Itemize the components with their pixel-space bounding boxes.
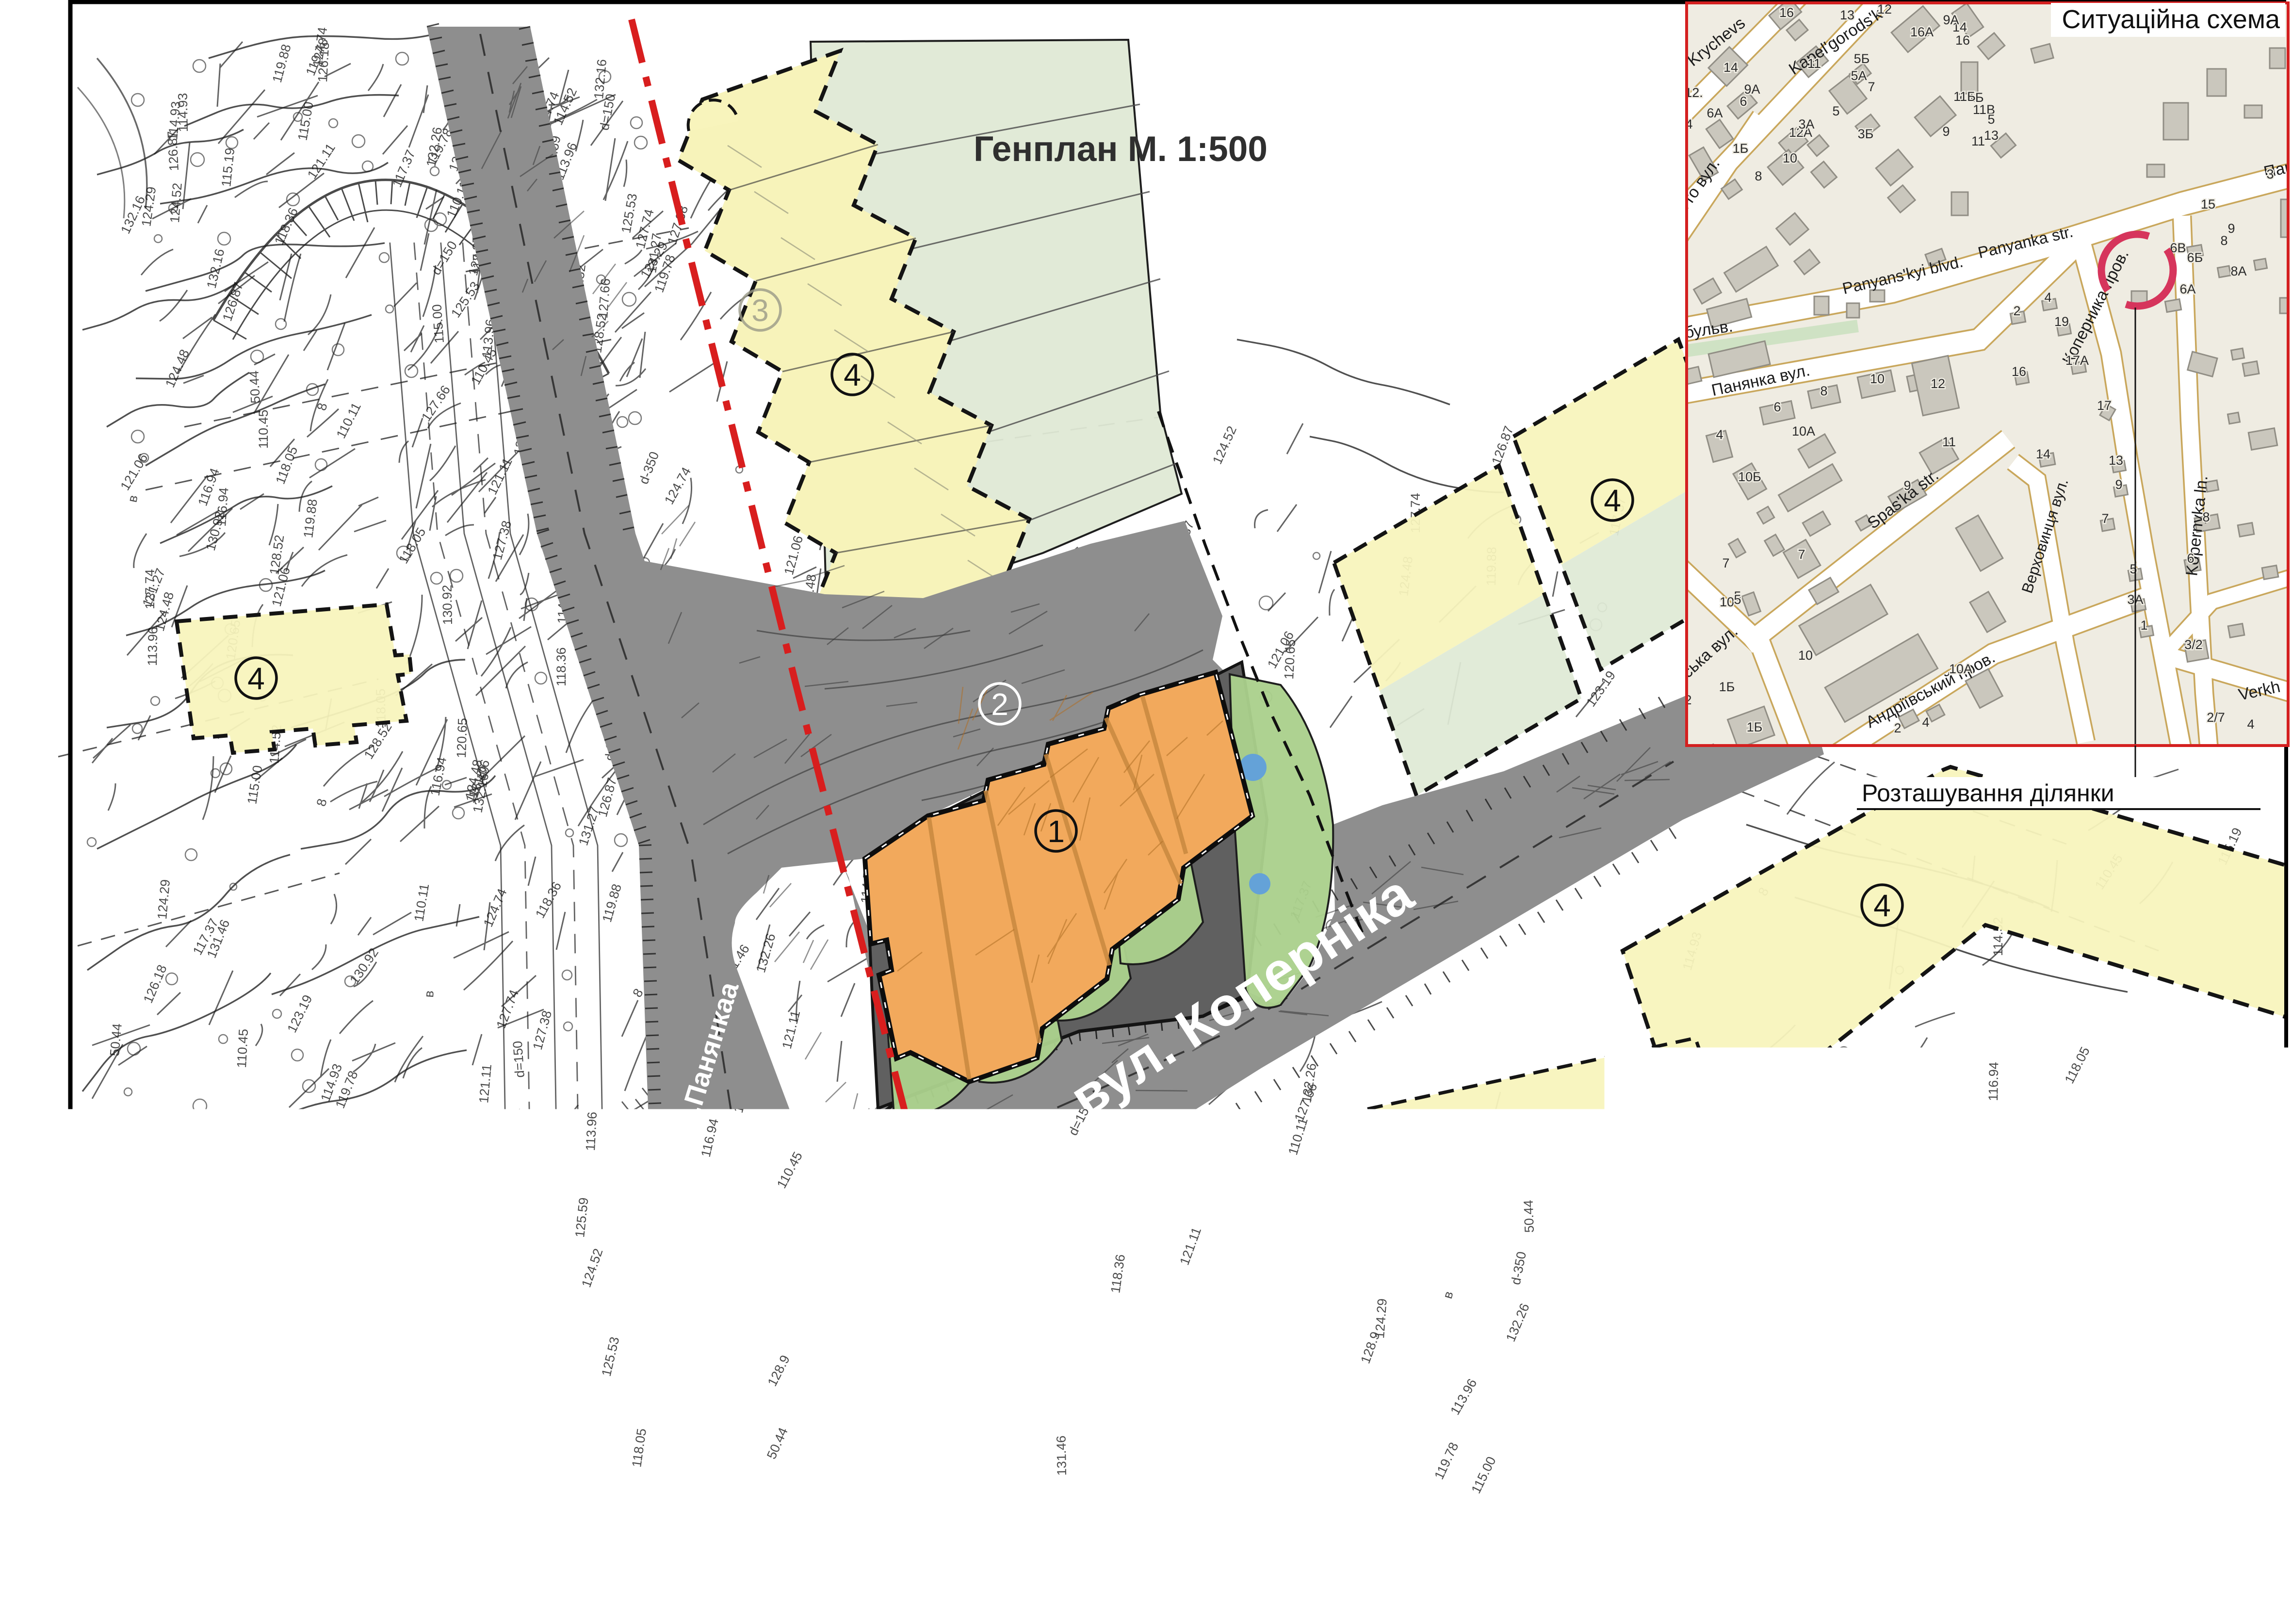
svg-text:14: 14 [2036,447,2050,461]
svg-text:4: 4 [844,357,861,392]
svg-text:4: 4 [2247,717,2254,731]
svg-text:50.44: 50.44 [107,1023,125,1057]
svg-text:7: 7 [1798,547,1805,562]
svg-text:Стадія: Стадія [1967,1464,2033,1488]
svg-text:3. Існуюча забудова: 3. Існуюча забудова [130,1285,409,1318]
svg-text:13: 13 [1840,8,1854,22]
svg-text:6А: 6А [1707,106,1723,120]
svg-text:4: 4 [1716,427,1723,442]
svg-text:2: 2 [2013,304,2020,318]
svg-text:№док.: №док. [1403,1439,1457,1460]
svg-text:2: 2 [991,687,1008,722]
svg-text:130.92: 130.92 [440,585,455,625]
svg-text:13: 13 [1984,128,1999,143]
svg-text:3: 3 [2266,167,2274,181]
svg-text:Ситуаційна схема: Ситуаційна схема [2062,5,2280,34]
svg-text:5Б: 5Б [1854,51,1870,66]
svg-text:12: 12 [1931,376,1945,391]
svg-text:16: 16 [1955,33,1970,48]
svg-text:1. Проектований будинок: 1. Проектований будинок [130,1211,482,1245]
svg-text:1Б: 1Б [1719,680,1735,694]
svg-text:Зміни: Зміни [1235,1439,1284,1460]
svg-text:4: 4 [1366,1155,1384,1190]
svg-text:11: 11 [1971,134,1985,148]
svg-text:2010: 2010 [1551,1310,1598,1334]
svg-text:ПП Полтаваархпроект: ПП Полтаваархпроект [1980,1574,2261,1604]
svg-text:8: 8 [2202,510,2210,524]
svg-text:3: 3 [1558,1269,1576,1304]
svg-text:10: 10 [1720,595,1734,609]
svg-text:127.66: 127.66 [596,278,613,319]
svg-text:16А: 16А [1910,25,1934,39]
svg-text:ГАП: ГАП [1238,1466,1278,1490]
svg-text:Перевірив: Перевірив [1238,1526,1341,1550]
svg-text:3А: 3А [1798,117,1814,131]
svg-text:10: 10 [1783,151,1797,165]
svg-text:4: 4 [1922,715,1929,730]
svg-text:11Б: 11Б [1953,89,1976,104]
svg-text:9: 9 [2115,477,2122,492]
svg-text:8: 8 [1755,169,1762,183]
svg-text:Н. контроль: Н. контроль [1238,1496,1355,1520]
svg-text:5: 5 [1987,112,1995,127]
svg-text:124.52: 124.52 [167,182,185,223]
svg-text:Взамін інв. №: Взамін інв. № [2,1157,22,1268]
svg-text:6А: 6А [2179,282,2195,296]
svg-text:11: 11 [1807,56,1821,71]
svg-text:110.45: 110.45 [256,409,271,449]
svg-text:118.36: 118.36 [554,647,569,686]
svg-text:3/2: 3/2 [2184,637,2203,652]
svg-text:d=150: d=150 [510,1040,527,1078]
svg-text:8: 8 [2220,233,2227,248]
svg-text:6: 6 [1739,94,1747,109]
svg-text:Аркушів: Аркушів [2169,1464,2249,1488]
svg-text:4: 4 [1873,888,1891,923]
svg-text:Карюк В.: Карюк В. [1349,1556,1437,1579]
svg-text:8: 8 [1820,384,1827,398]
svg-text:114.93: 114.93 [176,93,191,132]
svg-text:2: 2 [1894,721,1901,735]
svg-text:50.44: 50.44 [246,370,262,404]
svg-text:в: в [422,990,437,998]
svg-text:15: 15 [2201,197,2215,211]
svg-text:в м. Полтава: в м. Полтава [1867,1413,2024,1442]
svg-text:9: 9 [1903,478,1911,493]
svg-text:8А: 8А [2230,264,2246,278]
svg-text:Карюк: Карюк [1349,1466,1412,1490]
svg-text:10: 10 [1870,372,1885,386]
svg-text:4. Перспективна забудова: 4. Перспективна забудова [130,1322,496,1355]
svg-text:3: 3 [751,293,769,328]
svg-text:120.65: 120.65 [454,718,470,759]
svg-text:Генплан М. 1:500: Генплан М. 1:500 [974,130,1268,169]
svg-text:Експлікація генплану:: Експлікація генплану: [130,1168,432,1201]
svg-text:126.87: 126.87 [165,130,181,171]
svg-text:115.00: 115.00 [429,304,447,343]
svg-text:16: 16 [2012,364,2026,379]
svg-text:17: 17 [2097,398,2112,413]
svg-text:5: 5 [1832,104,1839,118]
svg-text:Буренков: Буренков [1349,1496,1442,1520]
svg-text:5: 5 [1734,592,1741,607]
svg-text:113.96: 113.96 [145,627,160,666]
svg-text:1Б: 1Б [1733,141,1749,156]
svg-text:19: 19 [2054,314,2069,329]
svg-text:Блокований житловий будинок по: Блокований житловий будинок по вул. Копе… [1627,1370,2263,1399]
svg-text:2/7: 2/7 [2207,710,2225,725]
svg-text:116.94: 116.94 [1986,1062,2001,1101]
svg-text:3Б: 3Б [1858,127,1874,141]
svg-text:14: 14 [1723,60,1738,75]
svg-text:17А: 17А [2065,353,2089,368]
svg-text:11: 11 [1942,435,1956,449]
svg-text:1Б: 1Б [1747,720,1763,734]
svg-text:Громов: Громов [1349,1526,1421,1550]
svg-text:113.96: 113.96 [583,1111,600,1151]
svg-text:Кільк.: Кільк. [1291,1439,1339,1460]
svg-text:4: 4 [247,661,265,696]
svg-text:10А: 10А [1792,424,1815,438]
svg-text:Розробив: Розробив [1238,1556,1333,1579]
svg-text:Дата: Дата [1554,1439,1595,1460]
svg-text:6Б: 6Б [2187,250,2203,265]
svg-text:Аркуш: Аркуш [1345,1439,1399,1460]
svg-text:Генплан. М 1:500: Генплан. М 1:500 [1671,1574,1887,1604]
svg-text:4: 4 [1604,483,1621,518]
svg-text:1: 1 [1047,814,1065,849]
svg-text:6: 6 [2187,551,2194,566]
svg-text:6: 6 [1773,400,1781,414]
svg-text:5А: 5А [1851,68,1867,83]
svg-text:13: 13 [2109,453,2123,468]
svg-text:Підпис: Підпис [1474,1439,1532,1460]
svg-text:110.45: 110.45 [234,1028,251,1068]
svg-text:Підпис і дата: Підпис і дата [2,1299,22,1404]
svg-text:4: 4 [2044,290,2051,305]
svg-text:2. Проектований проїзд: 2. Проектований проїзд [130,1248,458,1282]
svg-text:Аркуш: Аркуш [2058,1464,2121,1488]
svg-text:9: 9 [1942,124,1950,139]
svg-text:9: 9 [2227,221,2235,236]
svg-text:Інв. № ориг.: Інв. № ориг. [2,1462,22,1558]
svg-text:Розташування ділянки: Розташування ділянки [1862,780,2114,807]
svg-text:10Б: 10Б [1738,470,1761,484]
svg-text:ЕП: ЕП [1981,1508,2020,1539]
svg-text:10А: 10А [1949,662,1972,676]
svg-text:7: 7 [2101,511,2109,526]
svg-text:1: 1 [2140,618,2147,633]
svg-text:9А: 9А [1943,13,1959,27]
svg-text:7: 7 [1868,80,1875,94]
svg-text:16: 16 [1779,5,1794,20]
svg-text:7: 7 [1722,556,1729,570]
svg-text:10: 10 [1798,648,1813,663]
